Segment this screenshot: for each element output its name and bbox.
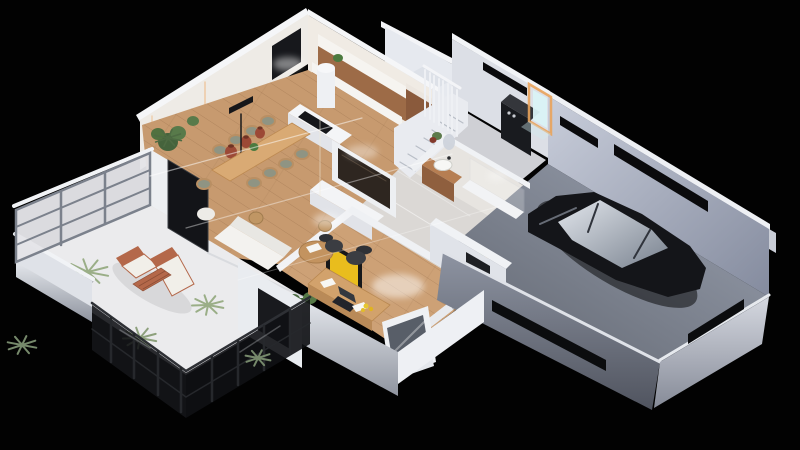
dining-chair-head bbox=[197, 179, 211, 189]
palm-frond bbox=[192, 305, 208, 306]
dining-chair bbox=[261, 116, 275, 126]
lemon-1 bbox=[364, 304, 369, 309]
smoke-wisp-1 bbox=[372, 274, 424, 298]
vase-neck-3 bbox=[257, 126, 262, 129]
smoke-wisp-4 bbox=[487, 171, 507, 181]
dining-corner-plant-3 bbox=[151, 128, 165, 140]
dining-chair bbox=[263, 168, 277, 178]
bath-sink bbox=[434, 160, 452, 171]
washer-knob-2 bbox=[512, 114, 515, 117]
office-chair-2-seat bbox=[325, 240, 343, 253]
scene-svg bbox=[0, 0, 800, 450]
kitchen-column-top bbox=[317, 63, 335, 73]
office-chair-1-seat bbox=[346, 251, 366, 265]
wall-plant-small bbox=[187, 116, 199, 126]
bath-faucet bbox=[447, 156, 451, 160]
palm-center bbox=[206, 303, 211, 308]
palm-center bbox=[20, 343, 25, 348]
dining-chair bbox=[295, 149, 309, 159]
dining-chair bbox=[213, 145, 227, 155]
washer-knob-1 bbox=[507, 111, 510, 114]
floorplan-render bbox=[0, 0, 800, 450]
garage-east-edge bbox=[769, 229, 776, 253]
bath-mirror bbox=[443, 134, 455, 150]
rattan-vase-1 bbox=[249, 212, 263, 224]
vase-neck-2 bbox=[243, 135, 249, 138]
bath-plant-pot bbox=[430, 137, 437, 143]
smoke-wisp-3 bbox=[273, 57, 303, 71]
kitchen-plant bbox=[333, 54, 343, 62]
pouf bbox=[197, 208, 215, 221]
lemon-3 bbox=[361, 308, 365, 312]
palm-center bbox=[256, 356, 261, 361]
palm-center bbox=[166, 136, 171, 141]
kitchen-column bbox=[317, 68, 335, 108]
dining-chair bbox=[247, 178, 261, 188]
dining-corner-plant-2 bbox=[170, 126, 186, 140]
vase-neck-1 bbox=[228, 144, 234, 148]
smoke-wisp-2 bbox=[313, 213, 341, 227]
dining-chair bbox=[279, 159, 293, 169]
smoke-wisp-5 bbox=[346, 145, 378, 159]
lemon-2 bbox=[369, 307, 373, 311]
